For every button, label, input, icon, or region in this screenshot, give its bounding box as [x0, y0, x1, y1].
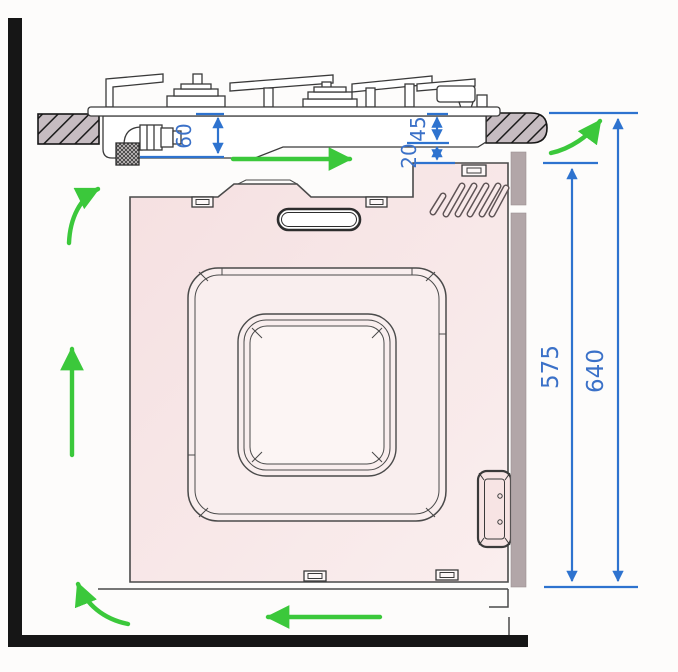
side-hinge-bracket [478, 471, 511, 547]
burner-2-base [303, 99, 357, 107]
pan-support-arm-left [106, 74, 163, 107]
burner-1-base [167, 96, 225, 107]
left-wall [8, 18, 22, 647]
support-leg-6 [477, 95, 487, 107]
oven [130, 163, 511, 582]
support-leg-4 [366, 88, 375, 107]
worktop-right-section [486, 113, 547, 143]
dim-label-60: 60 [172, 123, 196, 148]
burner-3-cap [437, 86, 475, 102]
threaded-nipple [116, 143, 139, 165]
installation-diagram: 60 45 20 575 640 [0, 0, 678, 672]
diagram-canvas: 60 45 20 575 640 [0, 0, 678, 672]
inner-window [250, 326, 384, 464]
oven-rear-frames [188, 268, 446, 521]
support-leg-5 [405, 84, 414, 107]
airflow-arrow-curve-top-right [551, 121, 600, 153]
support-leg-2 [264, 88, 273, 107]
worktop-left-section [38, 114, 99, 144]
bottom-panel [8, 635, 528, 647]
handle-slot [278, 209, 360, 230]
dim-label-45: 45 [406, 116, 430, 141]
airflow-arrow-curve-bottom-left [78, 584, 128, 624]
burner-1-top [181, 84, 211, 89]
gas-hob [88, 74, 500, 165]
hob-burners [106, 74, 487, 108]
niche-base-lines [98, 589, 509, 635]
burner-2-top [314, 87, 346, 92]
rear-panel-strip [511, 152, 526, 587]
burner-2-cap [308, 92, 352, 99]
union-nut [140, 125, 162, 150]
dim-label-20: 20 [397, 143, 421, 168]
burner-1-cap [174, 89, 218, 96]
dim-label-575: 575 [538, 345, 564, 389]
dim-label-640: 640 [583, 349, 609, 393]
airflow-arrow-curve-top-left [69, 189, 98, 243]
